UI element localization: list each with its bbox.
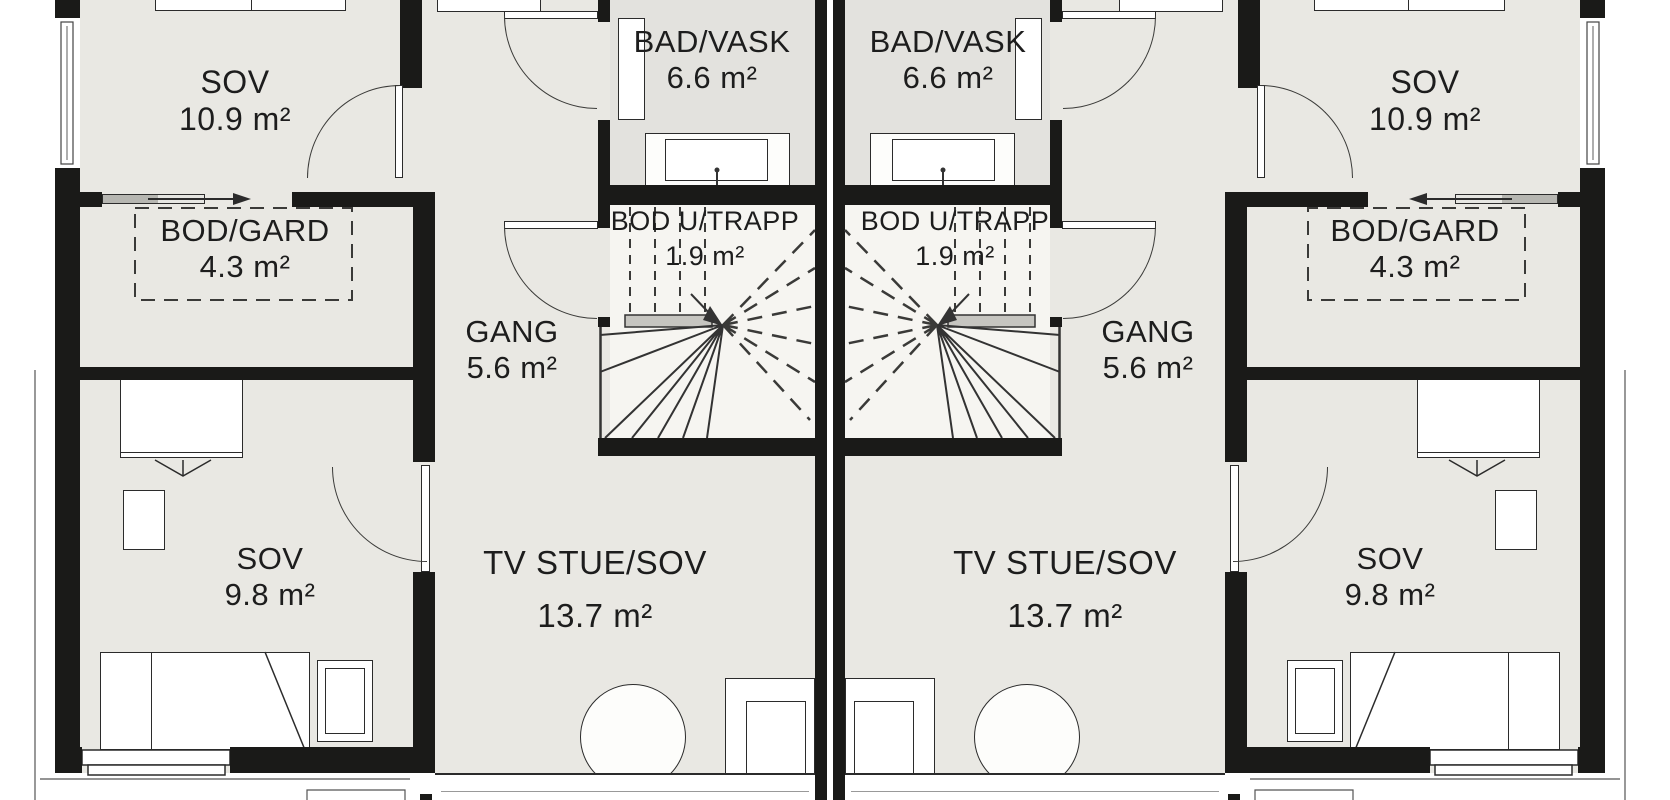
terrace-wall-stub: [420, 794, 432, 800]
room-area: 6.6 m²: [582, 60, 842, 96]
room-name: GANG: [1018, 314, 1278, 350]
room-name: SOV: [1260, 541, 1520, 577]
sliding-door-leaf: [103, 195, 158, 203]
wall: [1225, 367, 1595, 380]
room-label-bad-vask: BAD/VASK 6.6 m²: [818, 24, 1078, 96]
room-label-gang: GANG 5.6 m²: [382, 314, 642, 386]
wall: [292, 192, 422, 207]
nightstand: [317, 660, 373, 742]
wall: [1050, 0, 1062, 22]
bed: [100, 652, 310, 750]
sliding-door-leaf: [1502, 195, 1557, 203]
wall: [55, 168, 80, 773]
room-label-sov-bottom: SOV 9.8 m²: [1260, 541, 1520, 613]
dresser-divider: [1408, 0, 1409, 10]
sofa-seat-line-h: [746, 701, 806, 702]
window-frame: [55, 18, 80, 168]
window-frame: [1580, 18, 1605, 168]
wall: [598, 120, 610, 185]
wardrobe-front-line: [1418, 452, 1539, 453]
room-name: SOV: [105, 64, 365, 101]
nightstand: [1287, 660, 1343, 742]
wall: [1225, 572, 1247, 773]
bed: [1350, 652, 1560, 750]
room-label-tv-stue: TV STUE/SOV 13.7 m²: [465, 544, 725, 636]
wall: [230, 747, 435, 773]
room-name: SOV: [140, 541, 400, 577]
wall: [65, 367, 435, 380]
wall: [845, 438, 1062, 456]
bathtub-basin: [892, 139, 995, 181]
dresser: [155, 0, 346, 11]
room-area: 9.8 m²: [1260, 577, 1520, 613]
room-area: 5.6 m²: [382, 350, 642, 386]
wall: [845, 185, 1062, 205]
dwelling-unit: SOV 10.9 m² BAD/VASK 6.6 m² BOD/GARD 4.3…: [55, 0, 815, 800]
room-area: 5.6 m²: [1018, 350, 1278, 386]
glass-wall-band: [435, 773, 815, 800]
sofa-seat-line-h: [854, 701, 914, 702]
room-name: SOV: [1295, 64, 1555, 101]
wall: [1238, 192, 1368, 207]
dresser-divider: [251, 0, 252, 10]
outside-area: [55, 773, 435, 800]
room-name: TV STUE/SOV: [935, 544, 1195, 582]
sliding-door-panel: [102, 194, 205, 204]
bed-headboard-line: [1508, 653, 1509, 749]
room-label-sov-bottom: SOV 9.8 m²: [140, 541, 400, 613]
wardrobe: [1417, 378, 1540, 458]
nightstand-inner: [325, 668, 365, 734]
room-area: 4.3 m²: [1285, 249, 1545, 285]
glass-wall-line: [441, 791, 809, 792]
room-area: 1.9 m²: [825, 239, 1085, 274]
wall: [1580, 168, 1605, 773]
dwelling-unit: SOV 10.9 m² BAD/VASK 6.6 m² BOD/GARD 4.3…: [845, 0, 1605, 800]
room-name: TV STUE/SOV: [465, 544, 725, 582]
glass-wall-line: [851, 791, 1219, 792]
wall: [65, 192, 102, 207]
wardrobe-front-line: [121, 452, 242, 453]
room-area: 4.3 m²: [115, 249, 375, 285]
glass-wall-band: [845, 773, 1225, 800]
room-area: 10.9 m²: [105, 101, 365, 138]
room-area: 13.7 m²: [935, 597, 1195, 635]
room-label-sov-top: SOV 10.9 m²: [1295, 64, 1555, 138]
bathtub-basin: [665, 139, 768, 181]
room-label-tv-stue: TV STUE/SOV 13.7 m²: [935, 544, 1195, 636]
room-area: 13.7 m²: [465, 597, 725, 635]
wall: [55, 747, 82, 773]
wardrobe: [120, 378, 243, 458]
room-name: BOD U/TRAPP: [575, 204, 835, 239]
wall: [1238, 0, 1260, 88]
room-label-bod-u-trapp: BOD U/TRAPP 1.9 m²: [825, 204, 1085, 274]
bed-headboard-line: [151, 653, 152, 749]
floor-plan: SOV 10.9 m² BAD/VASK 6.6 m² BOD/GARD 4.3…: [0, 0, 1670, 800]
dresser: [1314, 0, 1505, 11]
room-label-bod-gard: BOD/GARD 4.3 m²: [115, 213, 375, 285]
wall: [1050, 120, 1062, 185]
room-name: GANG: [382, 314, 642, 350]
terrace-wall-stub: [1228, 794, 1240, 800]
wall: [598, 185, 815, 205]
party-wall: [815, 0, 827, 800]
room-area: 10.9 m²: [1295, 101, 1555, 138]
room-name: BOD/GARD: [115, 213, 375, 249]
room-name: BAD/VASK: [582, 24, 842, 60]
nightstand-inner: [1295, 668, 1335, 734]
outside-area: [1225, 773, 1605, 800]
room-label-sov-top: SOV 10.9 m²: [105, 64, 365, 138]
wall: [598, 0, 610, 22]
room-area: 9.8 m²: [140, 577, 400, 613]
room-label-bad-vask: BAD/VASK 6.6 m²: [582, 24, 842, 96]
sliding-door-panel: [1455, 194, 1558, 204]
wall: [1580, 0, 1605, 18]
wall: [400, 0, 422, 88]
wall: [1225, 747, 1430, 773]
wall: [598, 438, 815, 456]
room-name: BAD/VASK: [818, 24, 1078, 60]
party-wall: [833, 0, 845, 800]
room-area: 1.9 m²: [575, 239, 835, 274]
room-name: BOD U/TRAPP: [825, 204, 1085, 239]
room-label-bod-u-trapp: BOD U/TRAPP 1.9 m²: [575, 204, 835, 274]
wall: [413, 572, 435, 773]
room-area: 6.6 m²: [818, 60, 1078, 96]
room-label-gang: GANG 5.6 m²: [1018, 314, 1278, 386]
wall: [55, 0, 80, 18]
wall: [1558, 192, 1595, 207]
wall: [1578, 747, 1605, 773]
room-name: BOD/GARD: [1285, 213, 1545, 249]
room-label-bod-gard: BOD/GARD 4.3 m²: [1285, 213, 1545, 285]
